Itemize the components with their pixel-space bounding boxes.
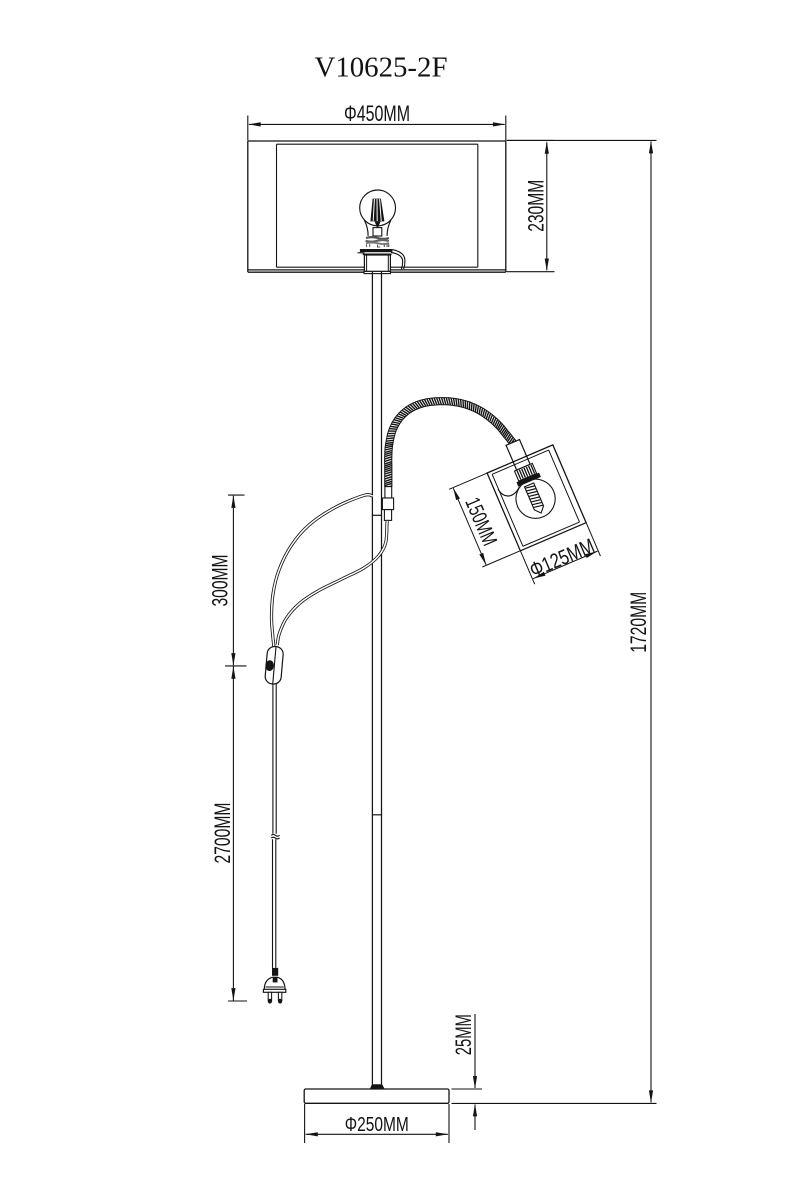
svg-text:25MM: 25MM <box>451 1014 476 1055</box>
svg-text:2700MM: 2700MM <box>210 803 235 864</box>
svg-text:V10625-2F: V10625-2F <box>315 52 448 84</box>
svg-text:230MM: 230MM <box>524 180 549 232</box>
svg-text:1720MM: 1720MM <box>626 592 651 653</box>
svg-text:300MM: 300MM <box>208 555 233 607</box>
svg-text:Φ450MM: Φ450MM <box>344 101 410 126</box>
svg-text:Φ250MM: Φ250MM <box>345 1114 409 1136</box>
